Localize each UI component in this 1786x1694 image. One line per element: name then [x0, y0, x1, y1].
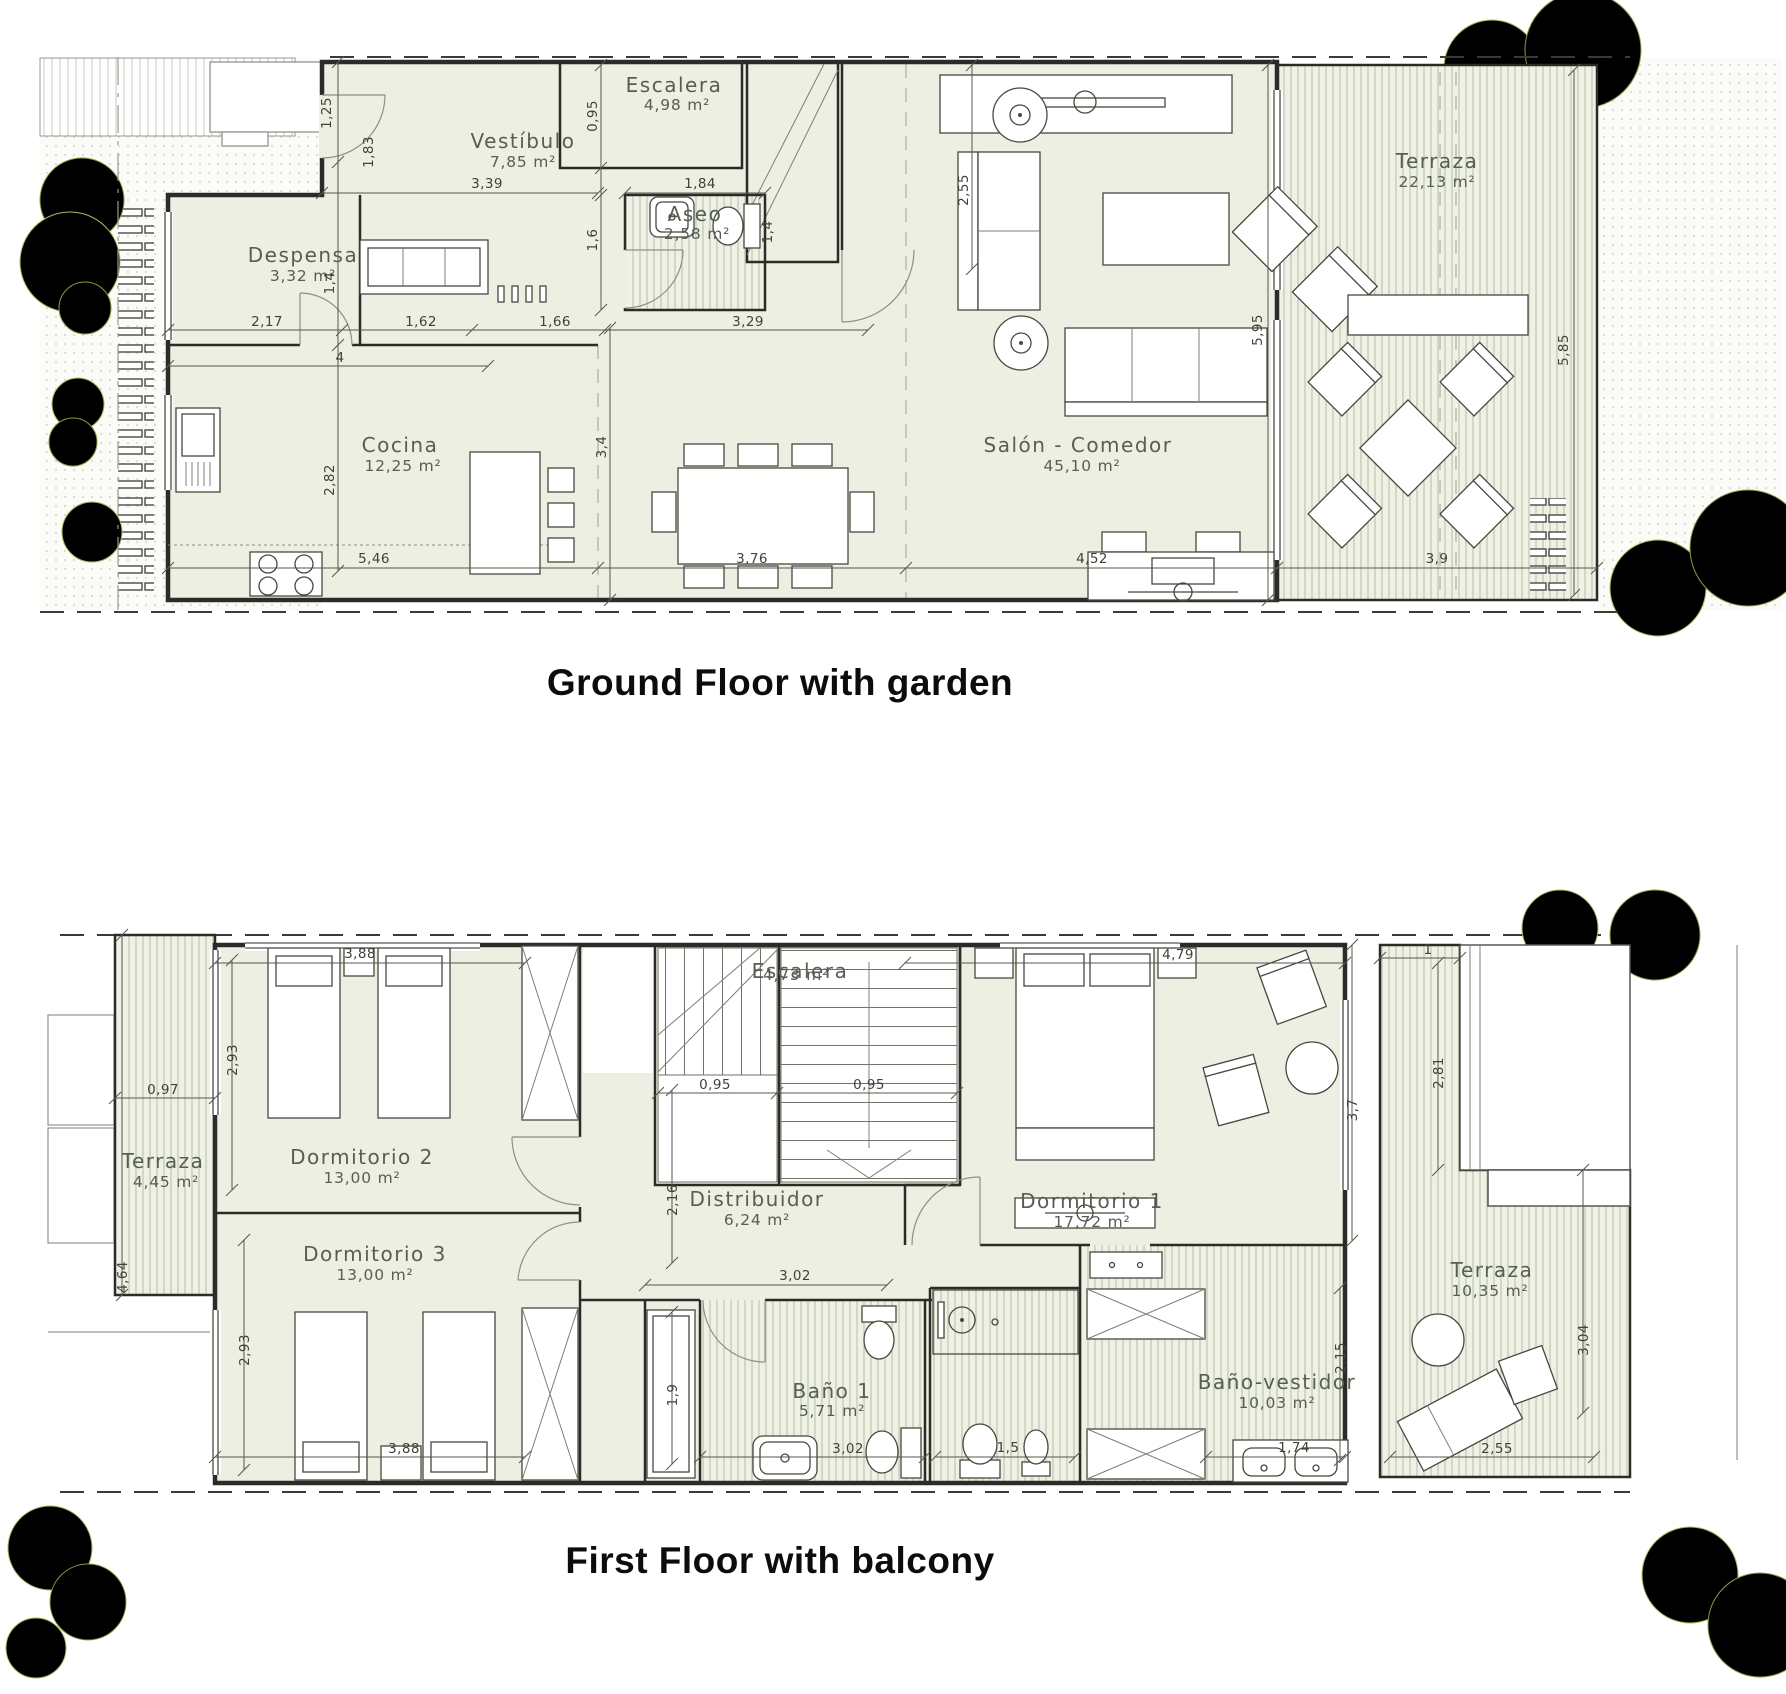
dim: 0,95	[853, 1077, 885, 1093]
dim: 3,39	[471, 176, 503, 192]
dim: 3,29	[732, 314, 764, 330]
tv-console-top	[940, 75, 1232, 133]
balcony-roof-structure	[1460, 945, 1630, 1206]
room-label-terraza-right: Terraza	[1450, 1258, 1534, 1282]
dim: 3,4	[594, 436, 610, 459]
dim: 3,02	[779, 1268, 811, 1284]
dim: 3,02	[832, 1441, 864, 1457]
dim: 3,88	[344, 946, 376, 962]
dorm3-furniture	[295, 1308, 578, 1480]
dim: 2,93	[225, 1044, 241, 1076]
room-area-escalera-ff: 4,73 m²	[763, 966, 829, 984]
stair-landing	[583, 947, 653, 1073]
room-area-aseo: 2,58 m²	[664, 225, 730, 243]
balcony-left-deck	[115, 935, 215, 1295]
dim: 3,9	[1426, 551, 1449, 567]
dim: 5,85	[1556, 334, 1572, 366]
floorplan-page: Despensa 3,32 m² Vestíbulo 7,85 m² Escal…	[0, 0, 1786, 1694]
terrace-steps	[1530, 498, 1566, 592]
room-label-dormitorio1: Dormitorio 1	[1020, 1189, 1164, 1213]
room-area-dormitorio3: 13,00 m²	[336, 1266, 413, 1284]
room-area-terraza-right: 10,35 m²	[1451, 1282, 1528, 1300]
coffee-table	[1103, 193, 1229, 265]
dim: 1,62	[405, 314, 437, 330]
dim: 1,25	[319, 97, 335, 129]
dorm2-furniture	[268, 946, 578, 1120]
room-label-escalera-gf: Escalera	[626, 73, 723, 97]
room-area-escalera-gf: 4,98 m²	[644, 96, 710, 114]
room-label-terraza-left: Terraza	[121, 1149, 205, 1173]
dim: 2,17	[251, 314, 283, 330]
room-label-dormitorio2: Dormitorio 2	[290, 1145, 434, 1169]
room-area-vestibulo: 7,85 m²	[490, 153, 556, 171]
dim: 1,84	[684, 176, 716, 192]
dim: 1,66	[539, 314, 571, 330]
dim: 0,95	[585, 100, 601, 132]
side-table-2	[994, 316, 1048, 370]
dim: 4,64	[115, 1261, 131, 1293]
room-label-cocina: Cocina	[362, 433, 439, 457]
dim: 1,74	[1278, 1440, 1310, 1456]
dim: 2,81	[1431, 1057, 1447, 1089]
floor-plan-drawing: Despensa 3,32 m² Vestíbulo 7,85 m² Escal…	[0, 0, 1786, 1694]
dim: 2,55	[956, 174, 972, 206]
dim: 5,95	[1250, 314, 1266, 346]
ground-floor-title: Ground Floor with garden	[0, 662, 1560, 704]
room-area-salon: 45,10 m²	[1043, 457, 1120, 475]
room-label-vestibulo: Vestíbulo	[471, 129, 576, 153]
kitchen-tall-unit	[176, 408, 220, 492]
room-area-bano1: 5,71 m²	[799, 1402, 865, 1420]
terrace-bench	[1348, 295, 1528, 335]
room-area-terraza-gf: 22,13 m²	[1398, 173, 1475, 191]
room-label-bano1: Baño 1	[793, 1379, 872, 1403]
dim: 2,16	[665, 1184, 681, 1216]
dim: 2,82	[322, 464, 338, 496]
dim: 1,6	[585, 229, 601, 252]
dim: 0,97	[147, 1082, 179, 1098]
dim: 4	[336, 350, 345, 366]
dim: 2,15	[1333, 1342, 1349, 1374]
sofa-bottom	[1065, 328, 1267, 416]
room-area-distribuidor: 6,24 m²	[724, 1211, 790, 1229]
dim: 3,76	[736, 551, 768, 567]
room-area-dormitorio1: 17,72 m²	[1053, 1213, 1130, 1231]
side-table-1	[993, 88, 1047, 142]
dim: 0,95	[699, 1077, 731, 1093]
room-label-salon: Salón - Comedor	[984, 433, 1173, 457]
dim: 5,46	[358, 551, 390, 567]
dim: 3,7	[1345, 1099, 1361, 1122]
kitchen-island	[470, 452, 574, 574]
dim: 3,88	[388, 1441, 420, 1457]
dim: 1,5	[997, 1440, 1020, 1456]
room-area-terraza-left: 4,45 m²	[133, 1173, 199, 1191]
dim: 1,4	[760, 221, 776, 244]
room-label-dormitorio3: Dormitorio 3	[303, 1242, 447, 1266]
dim: 1	[1424, 942, 1433, 958]
room-label-aseo: Aseo	[668, 202, 723, 226]
dim: 3,04	[1576, 1324, 1592, 1356]
garden-fence	[118, 205, 154, 592]
dim: 2,93	[237, 1334, 253, 1366]
room-label-terraza-gf: Terraza	[1395, 149, 1479, 173]
hall-wardrobe	[360, 240, 488, 294]
dim: 1,9	[665, 1384, 681, 1407]
room-area-banovestidor: 10,03 m²	[1238, 1394, 1315, 1412]
room-label-despensa: Despensa	[248, 243, 358, 267]
dim: 2,55	[1481, 1441, 1513, 1457]
dim: 1,4	[322, 272, 338, 295]
first-floor-title: First Floor with balcony	[0, 1540, 1560, 1582]
room-area-dormitorio2: 13,00 m²	[323, 1169, 400, 1187]
dim: 1,83	[361, 136, 377, 168]
room-area-cocina: 12,25 m²	[364, 457, 441, 475]
ground-floor-plan: Despensa 3,32 m² Vestíbulo 7,85 m² Escal…	[20, 0, 1786, 636]
room-label-distribuidor: Distribuidor	[689, 1187, 824, 1211]
dim: 4,52	[1076, 551, 1108, 567]
dim: 4,79	[1162, 947, 1194, 963]
